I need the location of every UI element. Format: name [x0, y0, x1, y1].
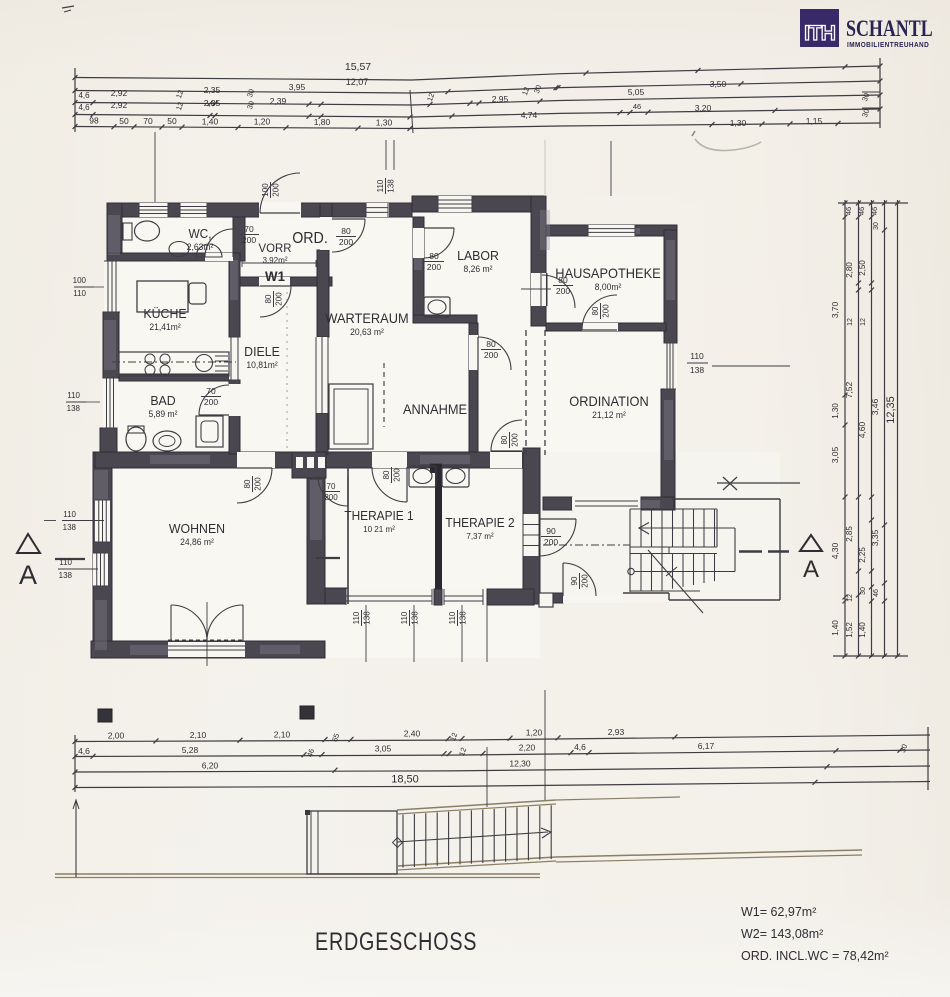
svg-text:7,37 m²: 7,37 m² — [466, 531, 494, 541]
svg-text:200: 200 — [484, 350, 498, 360]
svg-text:200: 200 — [511, 433, 520, 447]
svg-text:200: 200 — [393, 468, 402, 482]
svg-text:12,07: 12,07 — [346, 77, 369, 87]
svg-text:1,40: 1,40 — [202, 116, 219, 126]
svg-text:1,30: 1,30 — [831, 403, 840, 419]
svg-text:4,6: 4,6 — [78, 746, 90, 756]
svg-text:110: 110 — [448, 611, 457, 624]
svg-text:2,50: 2,50 — [858, 260, 867, 276]
svg-text:20,63 m²: 20,63 m² — [350, 327, 384, 337]
svg-text:100: 100 — [73, 276, 87, 285]
svg-text:110: 110 — [67, 391, 80, 400]
svg-text:110: 110 — [400, 611, 409, 624]
svg-text:4,60: 4,60 — [857, 421, 867, 438]
svg-text:2,63m²: 2,63m² — [187, 242, 214, 252]
svg-text:4,74: 4,74 — [521, 110, 538, 120]
svg-text:100: 100 — [261, 183, 270, 197]
svg-text:WARTERAUM: WARTERAUM — [325, 311, 408, 326]
svg-text:2,93: 2,93 — [608, 727, 625, 737]
svg-text:110: 110 — [690, 351, 704, 361]
svg-text:6,17: 6,17 — [698, 741, 715, 751]
svg-text:110: 110 — [352, 611, 361, 624]
svg-text:70: 70 — [143, 116, 153, 126]
svg-text:12: 12 — [860, 318, 867, 326]
svg-text:46: 46 — [633, 102, 641, 111]
svg-text:1,40: 1,40 — [858, 622, 867, 638]
svg-text:70: 70 — [327, 482, 336, 491]
svg-text:80: 80 — [382, 470, 391, 479]
svg-text:2,39: 2,39 — [270, 96, 287, 106]
svg-text:W2= 143,08m²: W2= 143,08m² — [741, 927, 823, 941]
svg-text:THERAPIE 2: THERAPIE 2 — [445, 516, 514, 530]
svg-text:80: 80 — [264, 294, 273, 303]
svg-text:2,25: 2,25 — [858, 547, 867, 563]
svg-text:138: 138 — [363, 611, 372, 625]
svg-text:46: 46 — [844, 207, 853, 215]
svg-text:A: A — [19, 560, 37, 590]
svg-text:138: 138 — [459, 611, 468, 625]
svg-text:30: 30 — [860, 587, 867, 595]
svg-text:THERAPIE 1: THERAPIE 1 — [344, 509, 413, 523]
svg-text:90: 90 — [546, 526, 556, 536]
svg-text:200: 200 — [204, 397, 218, 407]
svg-text:80: 80 — [591, 306, 600, 315]
svg-text:200: 200 — [339, 237, 353, 247]
svg-text:200: 200 — [272, 183, 281, 197]
svg-text:138: 138 — [690, 365, 704, 375]
svg-text:SCHANTL: SCHANTL — [846, 17, 933, 42]
svg-text:2,92: 2,92 — [111, 100, 128, 110]
svg-text:2,20: 2,20 — [519, 743, 536, 753]
svg-text:10,81m²: 10,81m² — [246, 360, 277, 370]
svg-text:WC,: WC, — [188, 227, 211, 241]
svg-text:2,40: 2,40 — [404, 728, 421, 738]
svg-text:50: 50 — [119, 116, 129, 126]
svg-text:1,20: 1,20 — [254, 117, 271, 127]
svg-text:2,95: 2,95 — [492, 94, 509, 104]
svg-text:70: 70 — [206, 386, 216, 396]
svg-text:138: 138 — [67, 404, 81, 413]
svg-text:2,92: 2,92 — [111, 88, 128, 98]
svg-text:2,10: 2,10 — [190, 730, 207, 740]
svg-text:80: 80 — [500, 435, 509, 444]
svg-text:2,00: 2,00 — [108, 731, 125, 741]
svg-text:W1: W1 — [265, 269, 285, 284]
svg-text:1,20: 1,20 — [526, 728, 543, 738]
svg-text:138: 138 — [411, 611, 420, 625]
svg-text:12,30: 12,30 — [509, 758, 531, 768]
svg-text:7,52: 7,52 — [844, 381, 854, 398]
svg-text:18,50: 18,50 — [391, 774, 419, 786]
svg-text:5,89 m²: 5,89 m² — [149, 409, 178, 419]
svg-text:LABOR: LABOR — [457, 249, 499, 263]
svg-text:200: 200 — [556, 286, 570, 296]
svg-text:3,95: 3,95 — [289, 82, 306, 92]
svg-text:15,57: 15,57 — [345, 61, 371, 73]
svg-text:2,10: 2,10 — [274, 729, 291, 739]
svg-text:ORD. INCL.WC = 78,42m²: ORD. INCL.WC = 78,42m² — [741, 949, 889, 963]
svg-text:3,35: 3,35 — [870, 529, 880, 546]
svg-text:138: 138 — [59, 571, 73, 580]
svg-text:200: 200 — [324, 493, 338, 502]
svg-text:W1= 62,97m²: W1= 62,97m² — [741, 905, 816, 919]
svg-text:4,6: 4,6 — [78, 91, 90, 100]
svg-text:90: 90 — [570, 576, 579, 585]
svg-text:80: 80 — [341, 226, 351, 236]
svg-text:200: 200 — [254, 477, 263, 491]
svg-text:2,35: 2,35 — [204, 85, 221, 95]
svg-text:200: 200 — [275, 292, 284, 306]
svg-text:110: 110 — [63, 510, 76, 519]
svg-text:46: 46 — [857, 207, 866, 215]
svg-text:2,85: 2,85 — [845, 526, 854, 542]
svg-text:200: 200 — [242, 235, 256, 245]
svg-text:98: 98 — [89, 116, 99, 126]
svg-text:8,26 m²: 8,26 m² — [464, 264, 493, 274]
svg-text:IMMOBILIENTREUHAND: IMMOBILIENTREUHAND — [847, 42, 929, 49]
svg-text:110: 110 — [73, 289, 86, 298]
svg-text:200: 200 — [427, 262, 441, 272]
svg-text:2,35: 2,35 — [204, 98, 221, 108]
svg-text:12,35: 12,35 — [885, 396, 897, 424]
svg-text:3,20: 3,20 — [695, 103, 712, 113]
svg-text:1,40: 1,40 — [831, 620, 840, 636]
svg-text:80: 80 — [243, 479, 252, 488]
svg-text:1,30: 1,30 — [376, 117, 393, 127]
svg-text:80: 80 — [429, 251, 439, 261]
svg-text:80: 80 — [486, 339, 496, 349]
svg-text:2,80: 2,80 — [845, 262, 854, 278]
svg-text:1,80: 1,80 — [314, 117, 331, 127]
svg-text:3,05: 3,05 — [830, 446, 840, 463]
svg-text:ERDGESCHOSS: ERDGESCHOSS — [315, 928, 477, 956]
svg-text:DIELE: DIELE — [244, 345, 280, 359]
svg-text:200: 200 — [581, 574, 590, 588]
svg-text:30: 30 — [873, 222, 880, 230]
svg-text:6,20: 6,20 — [202, 761, 219, 771]
svg-text:50: 50 — [167, 116, 177, 126]
svg-text:3,46: 3,46 — [870, 398, 880, 415]
svg-text:110: 110 — [376, 179, 385, 192]
svg-text:5,05: 5,05 — [628, 87, 645, 97]
svg-text:46: 46 — [870, 207, 879, 215]
svg-text:110: 110 — [59, 558, 72, 567]
svg-text:12: 12 — [847, 594, 854, 602]
svg-text:1,15: 1,15 — [806, 116, 823, 126]
svg-text:4,6: 4,6 — [78, 103, 90, 112]
svg-text:70: 70 — [244, 224, 254, 234]
svg-text:3,70: 3,70 — [830, 301, 840, 318]
svg-text:HAUSAPOTHEKE: HAUSAPOTHEKE — [555, 266, 661, 281]
svg-text:ANNAHME: ANNAHME — [403, 402, 467, 417]
svg-text:4,6: 4,6 — [574, 742, 586, 752]
svg-text:VORR: VORR — [259, 242, 292, 255]
svg-text:46: 46 — [873, 589, 880, 597]
svg-text:138: 138 — [63, 523, 77, 532]
svg-text:5,28: 5,28 — [182, 745, 199, 755]
svg-text:3,92m²: 3,92m² — [262, 255, 287, 265]
svg-text:KÜCHE: KÜCHE — [143, 307, 186, 321]
svg-text:4,30: 4,30 — [830, 542, 840, 559]
svg-text:138: 138 — [387, 179, 396, 193]
svg-text:WOHNEN: WOHNEN — [169, 522, 225, 536]
svg-text:ORD.: ORD. — [292, 231, 328, 248]
svg-text:BAD: BAD — [150, 394, 175, 408]
svg-text:24,86 m²: 24,86 m² — [180, 537, 214, 547]
svg-text:ITH: ITH — [804, 22, 835, 45]
svg-text:21,12 m²: 21,12 m² — [592, 410, 626, 420]
svg-text:ORDINATION: ORDINATION — [569, 394, 649, 409]
svg-text:8,00m²: 8,00m² — [595, 282, 622, 292]
svg-text:200: 200 — [602, 304, 611, 318]
svg-text:1,30: 1,30 — [730, 118, 747, 128]
svg-text:3,05: 3,05 — [375, 744, 392, 754]
svg-text:21,41m²: 21,41m² — [149, 322, 180, 332]
svg-text:A: A — [803, 556, 819, 583]
svg-text:12: 12 — [847, 318, 854, 326]
svg-text:3,50: 3,50 — [710, 79, 727, 89]
svg-text:1,52: 1,52 — [845, 622, 854, 638]
svg-text:10 21 m²: 10 21 m² — [363, 524, 395, 534]
